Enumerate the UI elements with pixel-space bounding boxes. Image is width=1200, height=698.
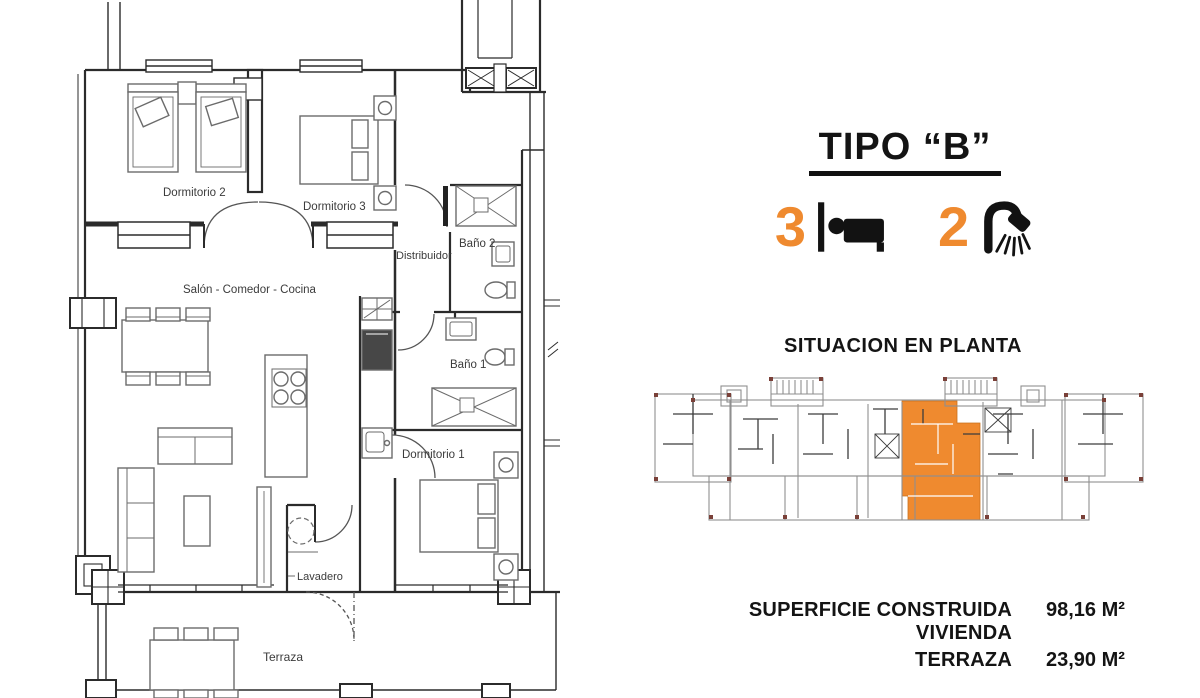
furniture	[118, 82, 518, 698]
bedroom-count: 3	[775, 199, 806, 255]
room-label-bano2: Baño 2	[459, 238, 495, 250]
shower-icon	[979, 196, 1035, 258]
room-label-distribuidor: Distribuidor	[396, 250, 452, 262]
surface-terraza-value: 23,90 M²	[1046, 649, 1196, 672]
surface-vivienda-label: SUPERFICIE CONSTRUIDA VIVIENDA	[653, 599, 1012, 645]
highlighted-unit	[902, 401, 980, 520]
bed-icon	[816, 198, 886, 256]
situacion-heading: SITUACION EN PLANTA	[653, 335, 1153, 358]
features-row: 3 2	[703, 196, 1107, 258]
bedrooms-feature: 3	[775, 198, 886, 256]
room-label-dormitorio2: Dormitorio 2	[163, 187, 226, 199]
room-label-bano1: Baño 1	[450, 359, 486, 371]
room-label-terraza: Terraza	[263, 650, 303, 664]
room-label-lavadero: Lavadero	[297, 571, 343, 583]
surface-vivienda-value: 98,16 M²	[1046, 599, 1196, 622]
building-site-plan	[653, 374, 1145, 534]
bathrooms-feature: 2	[938, 196, 1035, 258]
room-label-dormitorio3: Dormitorio 3	[303, 201, 366, 213]
bathroom-count: 2	[938, 199, 969, 255]
plan-type-title: TIPO “B”	[703, 126, 1107, 176]
surface-terraza-label: TERRAZA	[653, 649, 1012, 672]
room-label-dormitorio1: Dormitorio 1	[402, 449, 465, 461]
room-label-salon: Salón - Comedor - Cocina	[183, 284, 317, 296]
page: Dormitorio 2 Dormitorio 3 Baño 2 Distrib…	[0, 0, 1200, 698]
apartment-floorplan: Dormitorio 2 Dormitorio 3 Baño 2 Distrib…	[0, 0, 650, 698]
wardrobes	[118, 222, 393, 248]
